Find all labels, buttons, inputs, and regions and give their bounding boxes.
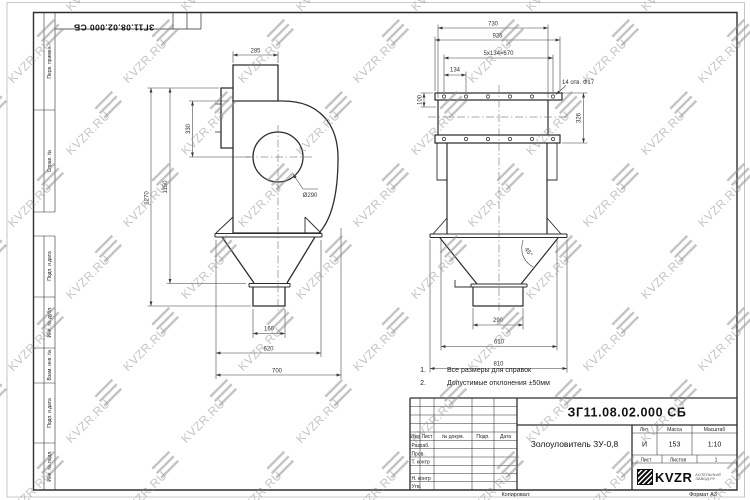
note-text: Допустимые отклонения ±50мм [447,380,550,387]
col-podp: Подп. [476,434,489,440]
col-docnum: № докум. [442,434,464,440]
header-mass: Масса [667,427,682,433]
title-block-doc-number: ЗГ11.08.02.000 СБ [568,406,687,420]
dim-inlet-to-center: 330 [186,123,192,134]
row-utv: Утв. [412,484,422,490]
dim-flange-width: 926 [492,34,503,40]
dim-hopper-width: 620 [263,347,274,353]
side-dim-lines [421,25,588,373]
col-data: Дата [500,434,511,440]
dim-body-diameter: Ø290 [303,193,318,199]
footer-format: Формат А3 [689,492,717,498]
kvzr-logo-name: KVZR [655,470,692,485]
dim-outlet-width: 290 [493,318,504,324]
corner-stamp-number: ЗГ11.08.02.000 СБ [74,23,155,33]
kvzr-logo-icon [638,470,652,484]
margin-labels: Перв. примен. Справ. № Подп. и дата Инв.… [47,45,53,481]
header-scale: Масштаб [704,427,726,433]
footer-copied: Копировал: [501,492,531,498]
label-sheets: Листов [670,457,687,463]
side-view [430,93,567,306]
margin-label: Взам. инв. № [47,350,53,381]
notes: 1. Все размеры для справок 2. Допустимые… [420,367,550,387]
sheet-border [7,3,745,498]
note-number: 2. [420,380,426,387]
dim-duct-width: 730 [488,22,499,28]
front-view [215,65,338,306]
dim-overall-depth: 700 [272,369,283,375]
margin-label: Инв. № дубл. [47,307,53,338]
header-lit: Лит. [640,427,649,433]
note-number: 1. [420,367,426,374]
front-dim-texts: 285 330 1150 1270 Ø290 160 620 700 [145,49,318,375]
label-sheet: Лист [641,457,653,463]
company-logo: KVZR КОТЕЛЬНЫЙ ЗАВОД.РУ [638,466,734,488]
drawing-sheet: Перв. примен. Справ. № Подп. и дата Инв.… [0,0,750,500]
note-text: Все размеры для справок [447,367,532,374]
row-nkontr: Н. контр [412,476,431,482]
value-lit: И [642,442,647,449]
value-scale: 1:10 [708,442,722,449]
margin-label: Справ. № [47,150,53,173]
kvzr-logo-tagline: КОТЕЛЬНЫЙ ЗАВОД.РУ [695,473,720,482]
col-izm: Изм [410,434,420,440]
dim-overall-height: 1270 [145,191,151,205]
margin-label: Перв. примен. [47,45,53,78]
dim-flange-offset: 100 [418,94,424,105]
dim-height-to-cone: 1150 [163,180,169,194]
product-title: Золоуловитель ЗУ-0,8 [531,439,619,449]
row-tkontr: Т. контр [412,460,430,466]
col-list: Лист [422,434,434,440]
row-prov: Пров. [412,451,425,457]
dim-first-pitch: 134 [450,68,461,74]
dim-flange-height: 326 [577,112,583,123]
dim-cone-top-width: 610 [494,340,505,346]
margin-label: Подп. и дата [47,251,53,281]
margin-label: Инв. № подл. [47,450,53,481]
dim-outlet-width: 160 [264,327,275,333]
bolt-holes [442,95,554,141]
dim-inlet-width: 285 [250,49,261,55]
row-razrab: Разраб. [412,443,430,449]
dim-bolt-pitch: 5x134=670 [484,51,515,57]
value-sheets: 1 [715,457,718,463]
dim-cone-angle: 45° [523,247,533,258]
margin-label: Подп. и дата [47,398,53,428]
holes-callout: 14 отв. Ф17 [562,80,595,86]
drawing-canvas: Перв. примен. Справ. № Подп. и дата Инв.… [0,0,750,500]
value-mass: 153 [669,442,681,449]
